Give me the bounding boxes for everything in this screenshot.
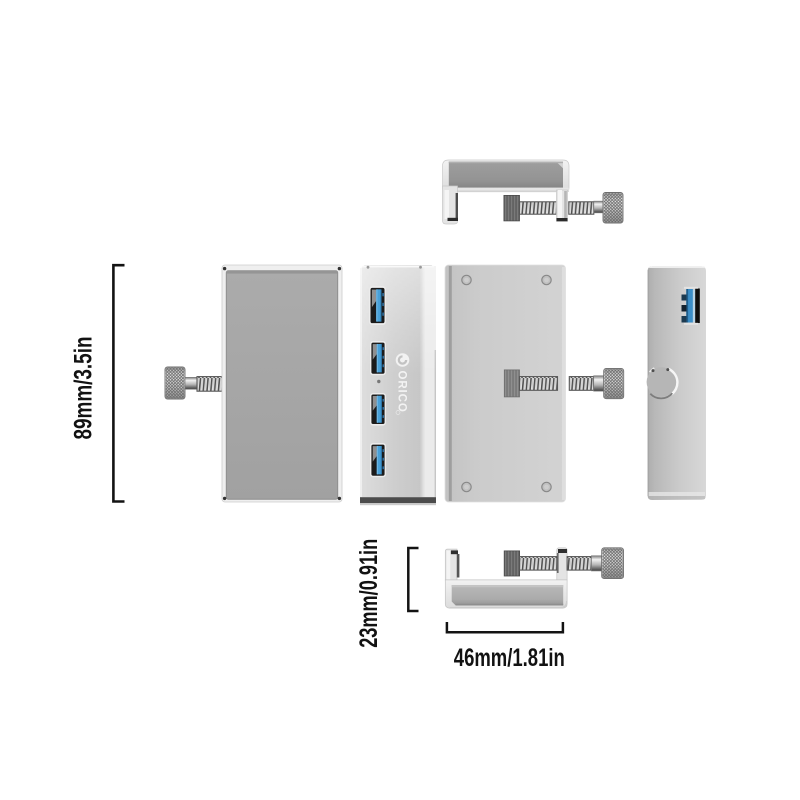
svg-text:ORICO: ORICO <box>396 371 408 413</box>
svg-text:46mm/1.81in: 46mm/1.81in <box>454 644 565 672</box>
svg-text:23mm/0.91in: 23mm/0.91in <box>355 539 383 648</box>
svg-text:89mm/3.5in: 89mm/3.5in <box>70 337 98 440</box>
